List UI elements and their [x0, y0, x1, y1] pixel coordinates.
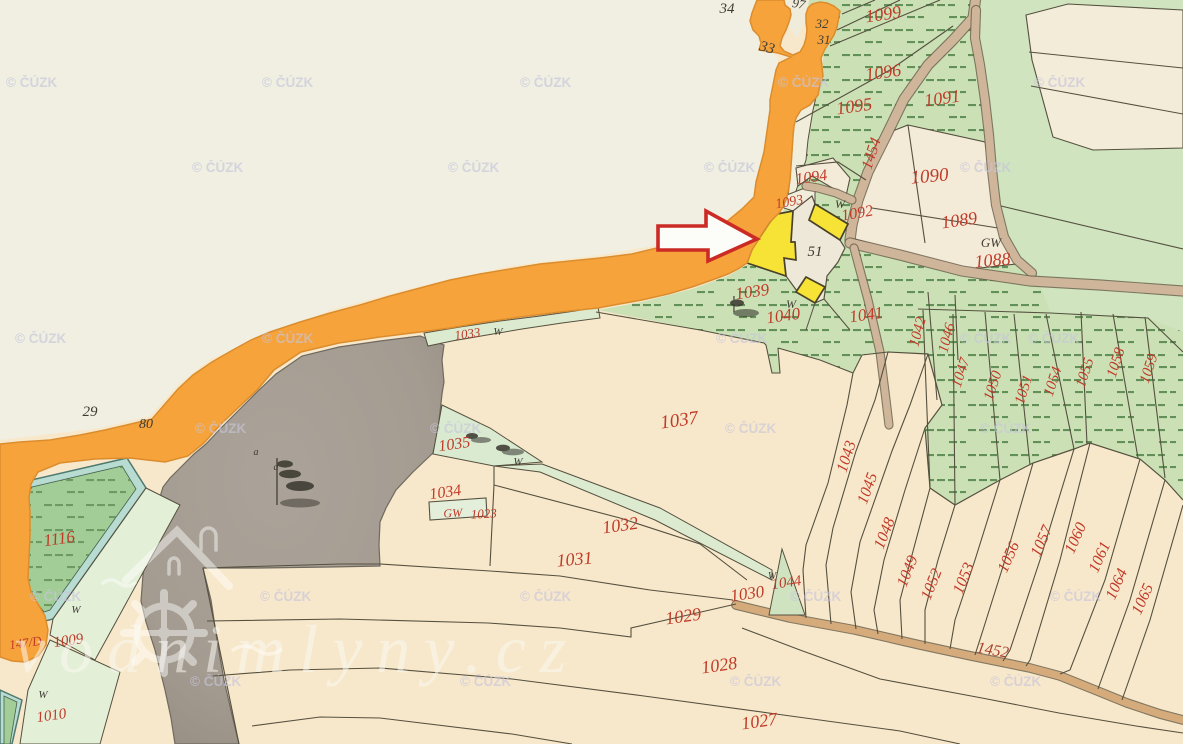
- svg-text:© ČÚZK: © ČÚZK: [716, 331, 767, 346]
- svg-text:34: 34: [719, 1, 736, 17]
- svg-text:GW: GW: [443, 505, 463, 520]
- svg-text:© ČÚZK: © ČÚZK: [980, 421, 1031, 436]
- svg-text:© ČÚZK: © ČÚZK: [520, 589, 571, 604]
- svg-text:a: a: [254, 447, 259, 458]
- svg-text:W: W: [786, 297, 797, 311]
- svg-text:© ČÚZK: © ČÚZK: [1050, 589, 1101, 604]
- svg-text:W: W: [513, 456, 523, 468]
- svg-text:1088: 1088: [974, 248, 1012, 271]
- svg-text:© ČÚZK: © ČÚZK: [15, 331, 66, 346]
- svg-text:© ČÚZK: © ČÚZK: [262, 331, 313, 346]
- svg-text:© ČÚZK: © ČÚZK: [990, 674, 1041, 689]
- svg-text:© ČÚZK: © ČÚZK: [960, 160, 1011, 175]
- svg-text:W: W: [38, 689, 48, 701]
- svg-text:© ČÚZK: © ČÚZK: [730, 674, 781, 689]
- svg-text:© ČÚZK: © ČÚZK: [430, 421, 481, 436]
- svg-text:80: 80: [139, 417, 153, 432]
- svg-text:1090: 1090: [910, 164, 950, 188]
- svg-text:© ČÚZK: © ČÚZK: [520, 75, 571, 90]
- svg-text:31: 31: [817, 32, 831, 47]
- svg-text:© ČÚZK: © ČÚZK: [725, 421, 776, 436]
- svg-text:32: 32: [815, 16, 830, 31]
- svg-text:© ČÚZK: © ČÚZK: [262, 75, 313, 90]
- svg-text:W: W: [835, 197, 846, 211]
- svg-text:© ČÚZK: © ČÚZK: [704, 160, 755, 175]
- svg-text:© ČÚZK: © ČÚZK: [30, 589, 81, 604]
- svg-text:vodnimlyny.cz: vodnimlyny.cz: [15, 611, 580, 687]
- svg-text:1023: 1023: [470, 505, 497, 521]
- svg-text:W: W: [493, 326, 503, 338]
- svg-text:29: 29: [83, 404, 99, 420]
- svg-text:© ČÚZK: © ČÚZK: [195, 421, 246, 436]
- svg-text:© ČÚZK: © ČÚZK: [960, 331, 1011, 346]
- svg-text:© ČÚZK: © ČÚZK: [1028, 331, 1079, 346]
- svg-text:a: a: [274, 462, 279, 473]
- svg-text:51: 51: [808, 244, 823, 260]
- svg-text:© ČÚZK: © ČÚZK: [260, 589, 311, 604]
- svg-text:1031: 1031: [556, 547, 594, 570]
- svg-text:© ČÚZK: © ČÚZK: [778, 75, 829, 90]
- svg-text:© ČÚZK: © ČÚZK: [448, 160, 499, 175]
- svg-text:GW: GW: [981, 235, 1002, 250]
- svg-text:© ČÚZK: © ČÚZK: [790, 589, 841, 604]
- svg-text:© ČÚZK: © ČÚZK: [192, 160, 243, 175]
- svg-text:© ČÚZK: © ČÚZK: [6, 75, 57, 90]
- svg-text:© ČÚZK: © ČÚZK: [1034, 75, 1085, 90]
